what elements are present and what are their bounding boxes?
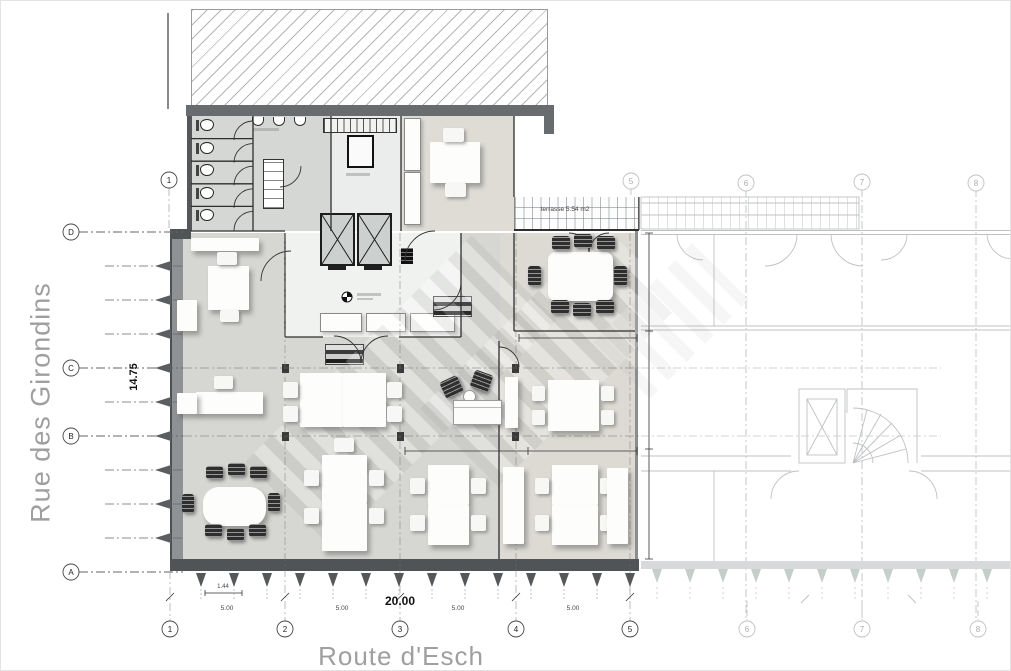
desk bbox=[428, 465, 469, 505]
sideboard-desk bbox=[607, 468, 628, 544]
desk bbox=[300, 373, 343, 427]
sideboard-desk bbox=[505, 377, 518, 428]
office-desk bbox=[430, 142, 480, 183]
meeting-table bbox=[203, 487, 266, 526]
svg-text:8: 8 bbox=[974, 179, 979, 188]
dimension-detail: 1.44 bbox=[208, 584, 238, 590]
chair bbox=[532, 386, 545, 401]
chair bbox=[471, 478, 486, 494]
conference-chair bbox=[552, 236, 570, 250]
chair bbox=[601, 386, 614, 401]
svg-text:7: 7 bbox=[860, 178, 865, 187]
svg-text:1: 1 bbox=[168, 625, 173, 634]
level-marker-icon bbox=[342, 292, 352, 302]
dimension-bay: 5.00 bbox=[438, 605, 478, 612]
desk bbox=[196, 392, 263, 414]
svg-text:4: 4 bbox=[514, 625, 519, 634]
svg-text:B: B bbox=[68, 432, 73, 441]
chair bbox=[387, 406, 402, 422]
floor-plan: terrasse 5.54 m2 bbox=[0, 0, 1011, 671]
svg-text:7: 7 bbox=[860, 625, 865, 634]
svg-text:A: A bbox=[68, 568, 74, 577]
chair bbox=[532, 410, 545, 425]
desk bbox=[548, 380, 599, 431]
elevator-x-icon bbox=[322, 215, 390, 264]
meeting-chair bbox=[250, 466, 267, 479]
desk bbox=[343, 373, 386, 427]
chair bbox=[304, 508, 319, 524]
linework: 6 7 8 5 6 7 8 D C B A 1 2 3 4 bbox=[1, 1, 1011, 671]
desk bbox=[552, 505, 598, 545]
chair bbox=[369, 508, 384, 524]
desk bbox=[428, 505, 469, 545]
chair bbox=[387, 382, 402, 398]
meeting-chair bbox=[249, 524, 266, 537]
office-chair bbox=[445, 183, 466, 197]
chair bbox=[214, 376, 233, 389]
desk bbox=[552, 465, 598, 505]
chair bbox=[217, 252, 237, 265]
meeting-chair bbox=[228, 463, 245, 476]
desk bbox=[322, 455, 367, 503]
meeting-chair bbox=[227, 528, 244, 541]
pedestal bbox=[177, 393, 197, 414]
facade-ticks-left bbox=[155, 261, 171, 543]
dimension-bay: 5.00 bbox=[207, 605, 247, 612]
street-label-bottom: Route d'Esch bbox=[301, 641, 501, 671]
svg-text:D: D bbox=[68, 228, 74, 237]
chair bbox=[535, 515, 549, 531]
chair bbox=[471, 515, 486, 531]
office-cabinet bbox=[404, 172, 421, 225]
chair bbox=[369, 470, 384, 486]
chair bbox=[283, 382, 298, 398]
svg-text:5: 5 bbox=[629, 177, 634, 186]
desk bbox=[322, 503, 367, 551]
conference-chair bbox=[574, 234, 592, 248]
svg-text:C: C bbox=[68, 364, 74, 373]
chair bbox=[535, 478, 549, 494]
svg-text:2: 2 bbox=[283, 625, 288, 634]
sideboard-desk bbox=[503, 467, 524, 544]
meeting-chair bbox=[182, 494, 194, 513]
conference-table bbox=[548, 252, 613, 301]
svg-text:3: 3 bbox=[398, 625, 403, 634]
svg-text:5: 5 bbox=[628, 625, 633, 634]
chair bbox=[334, 438, 354, 452]
dimension-total-width: 20.00 bbox=[370, 594, 430, 608]
desk bbox=[208, 266, 249, 310]
office-chair bbox=[443, 128, 464, 142]
chair bbox=[283, 406, 298, 422]
svg-text:6: 6 bbox=[745, 625, 750, 634]
conference-chair bbox=[573, 303, 591, 317]
dimension-bay: 5.00 bbox=[553, 605, 593, 612]
file-cabinet bbox=[177, 300, 197, 331]
chair bbox=[601, 410, 614, 425]
conference-chair bbox=[528, 266, 541, 286]
office-cabinet bbox=[404, 118, 421, 171]
dimension-total-depth: 14.75 bbox=[128, 342, 140, 412]
chair bbox=[410, 515, 425, 531]
meeting-chair bbox=[268, 493, 280, 512]
dimension-bay: 5.00 bbox=[322, 605, 362, 612]
street-label-left: Rue des Girondins bbox=[26, 271, 57, 535]
conference-chair bbox=[551, 300, 569, 314]
meeting-chair bbox=[205, 524, 222, 537]
svg-text:8: 8 bbox=[976, 625, 981, 634]
ghost-building: 6 7 8 5 6 7 8 bbox=[623, 173, 1011, 637]
sofa bbox=[453, 400, 502, 425]
svg-text:6: 6 bbox=[744, 179, 749, 188]
conference-chair bbox=[596, 300, 614, 314]
chair bbox=[220, 310, 239, 322]
meeting-chair bbox=[206, 466, 223, 479]
svg-text:1: 1 bbox=[167, 176, 172, 185]
conference-chair bbox=[614, 266, 627, 286]
sideboard-desk bbox=[191, 238, 259, 251]
chair bbox=[304, 470, 319, 486]
conference-chair bbox=[597, 236, 615, 250]
chair bbox=[410, 478, 425, 494]
